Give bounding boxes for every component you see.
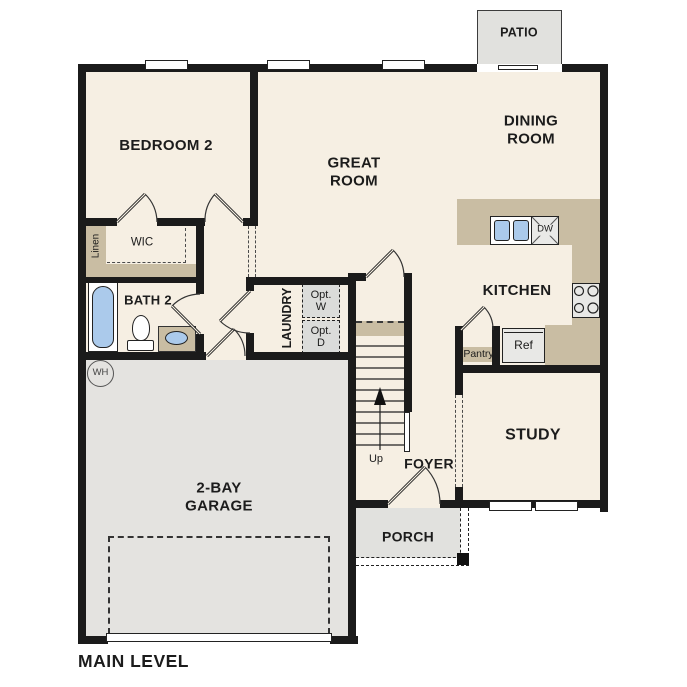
- room-label-wic: WIC: [131, 237, 153, 250]
- door-arc-front: [425, 467, 440, 504]
- floor-plan: Pantry WH Ref Opt. W Opt. D: [0, 0, 687, 687]
- stairs-up-label: Up: [369, 453, 383, 465]
- plan-title: MAIN LEVEL: [78, 651, 189, 672]
- room-label-bedroom2: BEDROOM 2: [119, 137, 213, 155]
- up-arrow-icon: [374, 387, 386, 450]
- dishwasher-label: DW: [536, 225, 554, 236]
- room-label-patio: PATIO: [500, 26, 538, 41]
- door-arc-bath2: [172, 294, 200, 306]
- door-arc-bedroom2: [205, 194, 215, 222]
- room-label-garage: 2-BAY GARAGE: [185, 479, 253, 514]
- room-label-linen: Linen: [91, 234, 102, 258]
- room-label-study: STUDY: [505, 427, 561, 446]
- door-arc-pantry: [484, 307, 493, 330]
- room-label-foyer: FOYER: [404, 456, 454, 473]
- door-arc-wic: [145, 194, 157, 222]
- stove-burners-icon: [575, 286, 599, 313]
- room-label-porch: PORCH: [382, 529, 434, 546]
- room-label-kitchen: KITCHEN: [483, 282, 552, 300]
- room-label-great-room: GREAT ROOM: [328, 154, 381, 189]
- room-label-dining-room: DINING ROOM: [504, 112, 558, 147]
- door-arc-stairs: [393, 250, 404, 277]
- door-arc-laundry: [220, 321, 250, 333]
- room-label-laundry: LAUNDRY: [280, 288, 294, 349]
- doors-and-stairs-layer: [0, 0, 687, 687]
- room-label-bath2: BATH 2: [124, 292, 172, 307]
